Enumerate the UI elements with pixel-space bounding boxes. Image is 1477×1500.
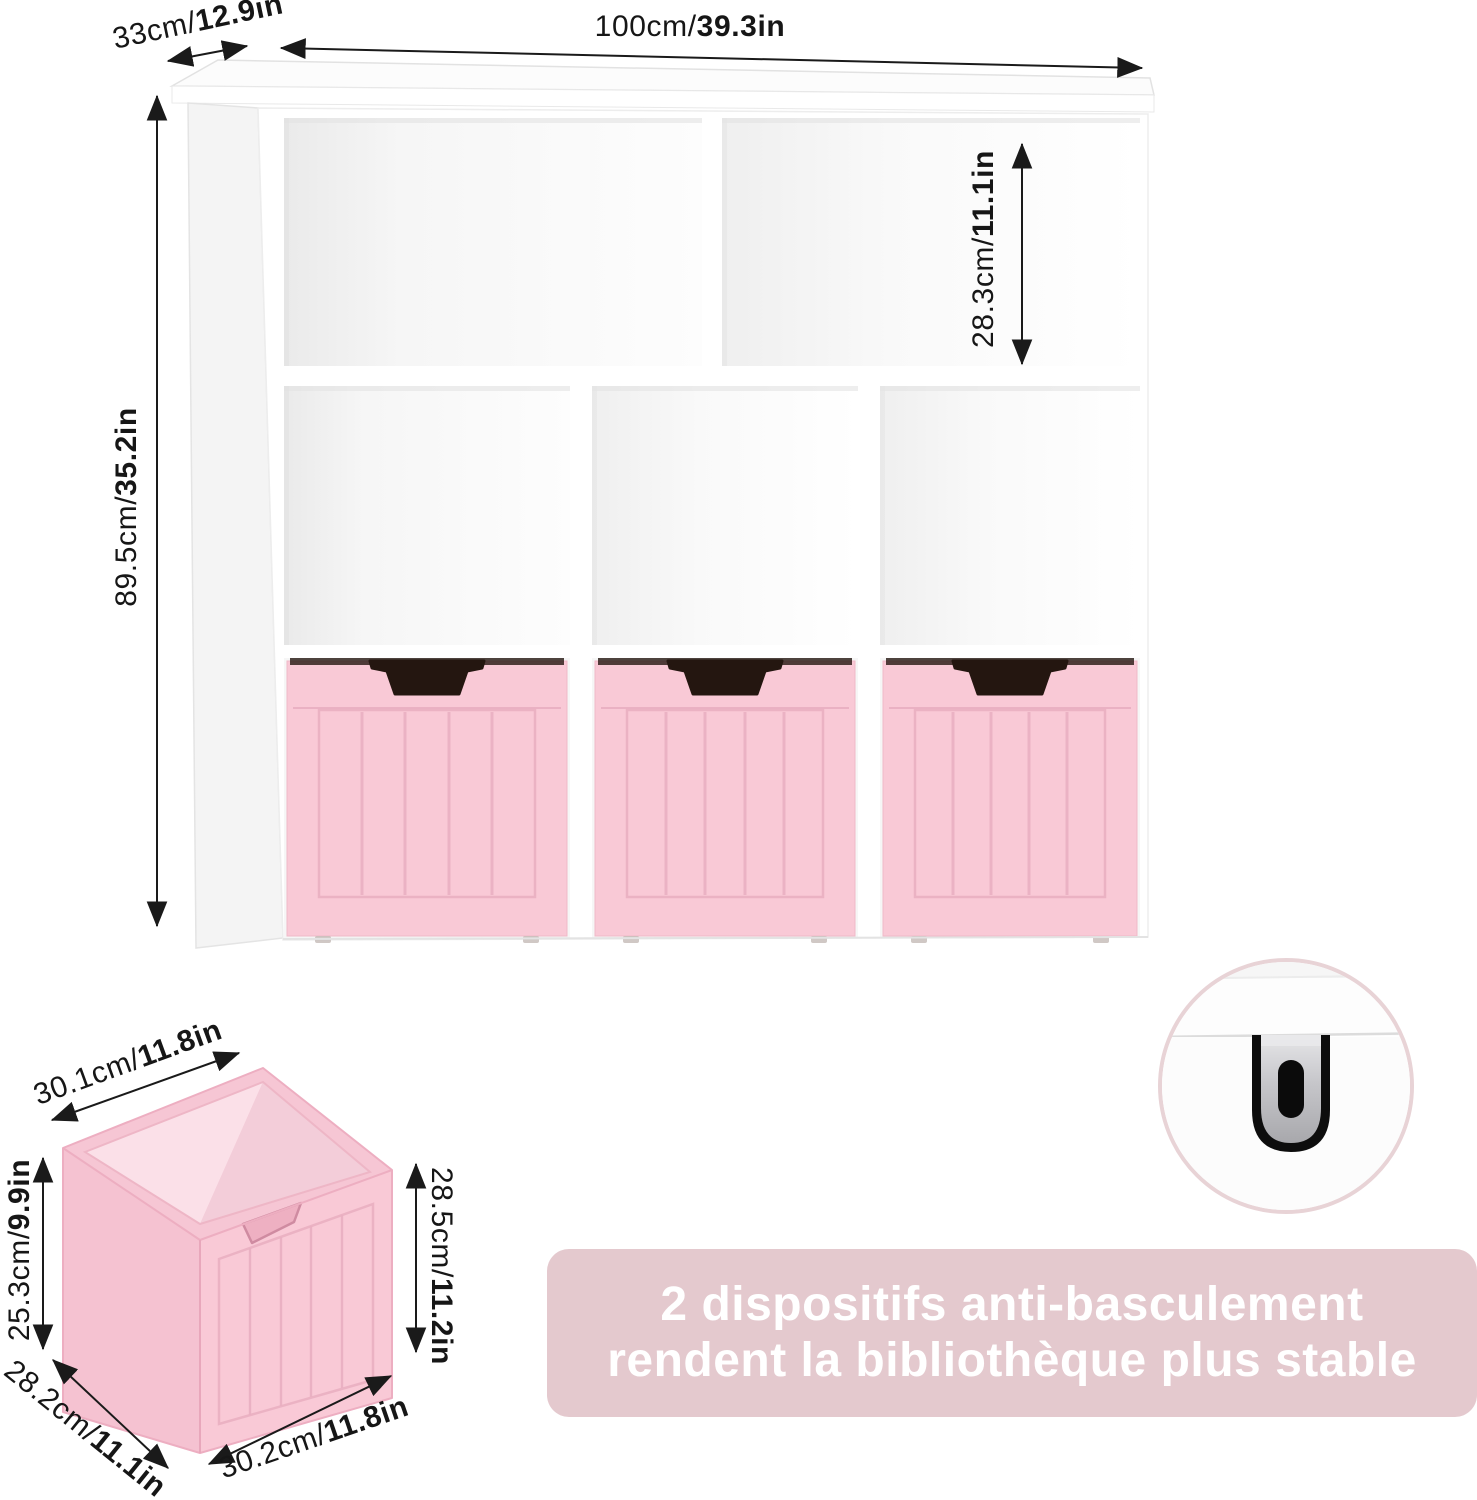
anti-tip-bracket-icon xyxy=(1252,1035,1330,1152)
dimension-label-box-right-height: 28.5cm/11.2in xyxy=(424,1167,458,1365)
dimension-label-height: 89.5cm/35.2in xyxy=(110,407,144,607)
cubby-middle-center xyxy=(592,386,858,645)
stability-banner-line2: rendent la bibliothèque plus stable xyxy=(607,1333,1417,1389)
height-imperial: 35.2in xyxy=(110,407,143,496)
height-metric: 89.5cm/ xyxy=(110,496,143,607)
cubby-height-imperial: 11.1in xyxy=(967,150,1000,237)
cubby-middle-right xyxy=(880,386,1140,645)
drawer-front-3 xyxy=(883,658,1137,943)
cubby-top-right xyxy=(722,118,1140,366)
width-metric: 100cm/ xyxy=(595,10,697,43)
stability-banner: 2 dispositifs anti-basculement rendent l… xyxy=(547,1249,1477,1417)
bookcase-illustration xyxy=(172,60,1154,948)
dimension-label-width: 100cm/39.3in xyxy=(595,10,786,44)
dimension-label-box-left-height: 25.3cm/9.9in xyxy=(3,1159,37,1341)
depth-arrow xyxy=(168,46,247,61)
drawer-front-2 xyxy=(595,658,855,943)
stability-banner-line1: 2 dispositifs anti-basculement xyxy=(660,1277,1363,1333)
anti-tip-detail-inset xyxy=(1150,950,1440,1217)
drawer-front-1 xyxy=(287,658,567,943)
cubby-top-left xyxy=(284,118,702,366)
product-image: 33cm/12.9in 100cm/39.3in 28.3cm/11.1in 8… xyxy=(0,0,1477,1500)
bracket-slot xyxy=(1278,1060,1304,1118)
dimension-label-cubby-height: 28.3cm/11.1in xyxy=(967,150,1001,348)
drawer-box-illustration xyxy=(63,1068,392,1453)
box-left-height-imperial: 9.9in xyxy=(3,1159,36,1230)
width-imperial: 39.3in xyxy=(697,10,786,43)
box-right-height-metric: 28.5cm/ xyxy=(425,1167,458,1278)
cubby-height-metric: 28.3cm/ xyxy=(967,237,1000,348)
box-right-height-imperial: 11.2in xyxy=(425,1278,458,1365)
cubby-middle-left xyxy=(284,386,570,645)
box-left-height-metric: 25.3cm/ xyxy=(3,1230,36,1341)
